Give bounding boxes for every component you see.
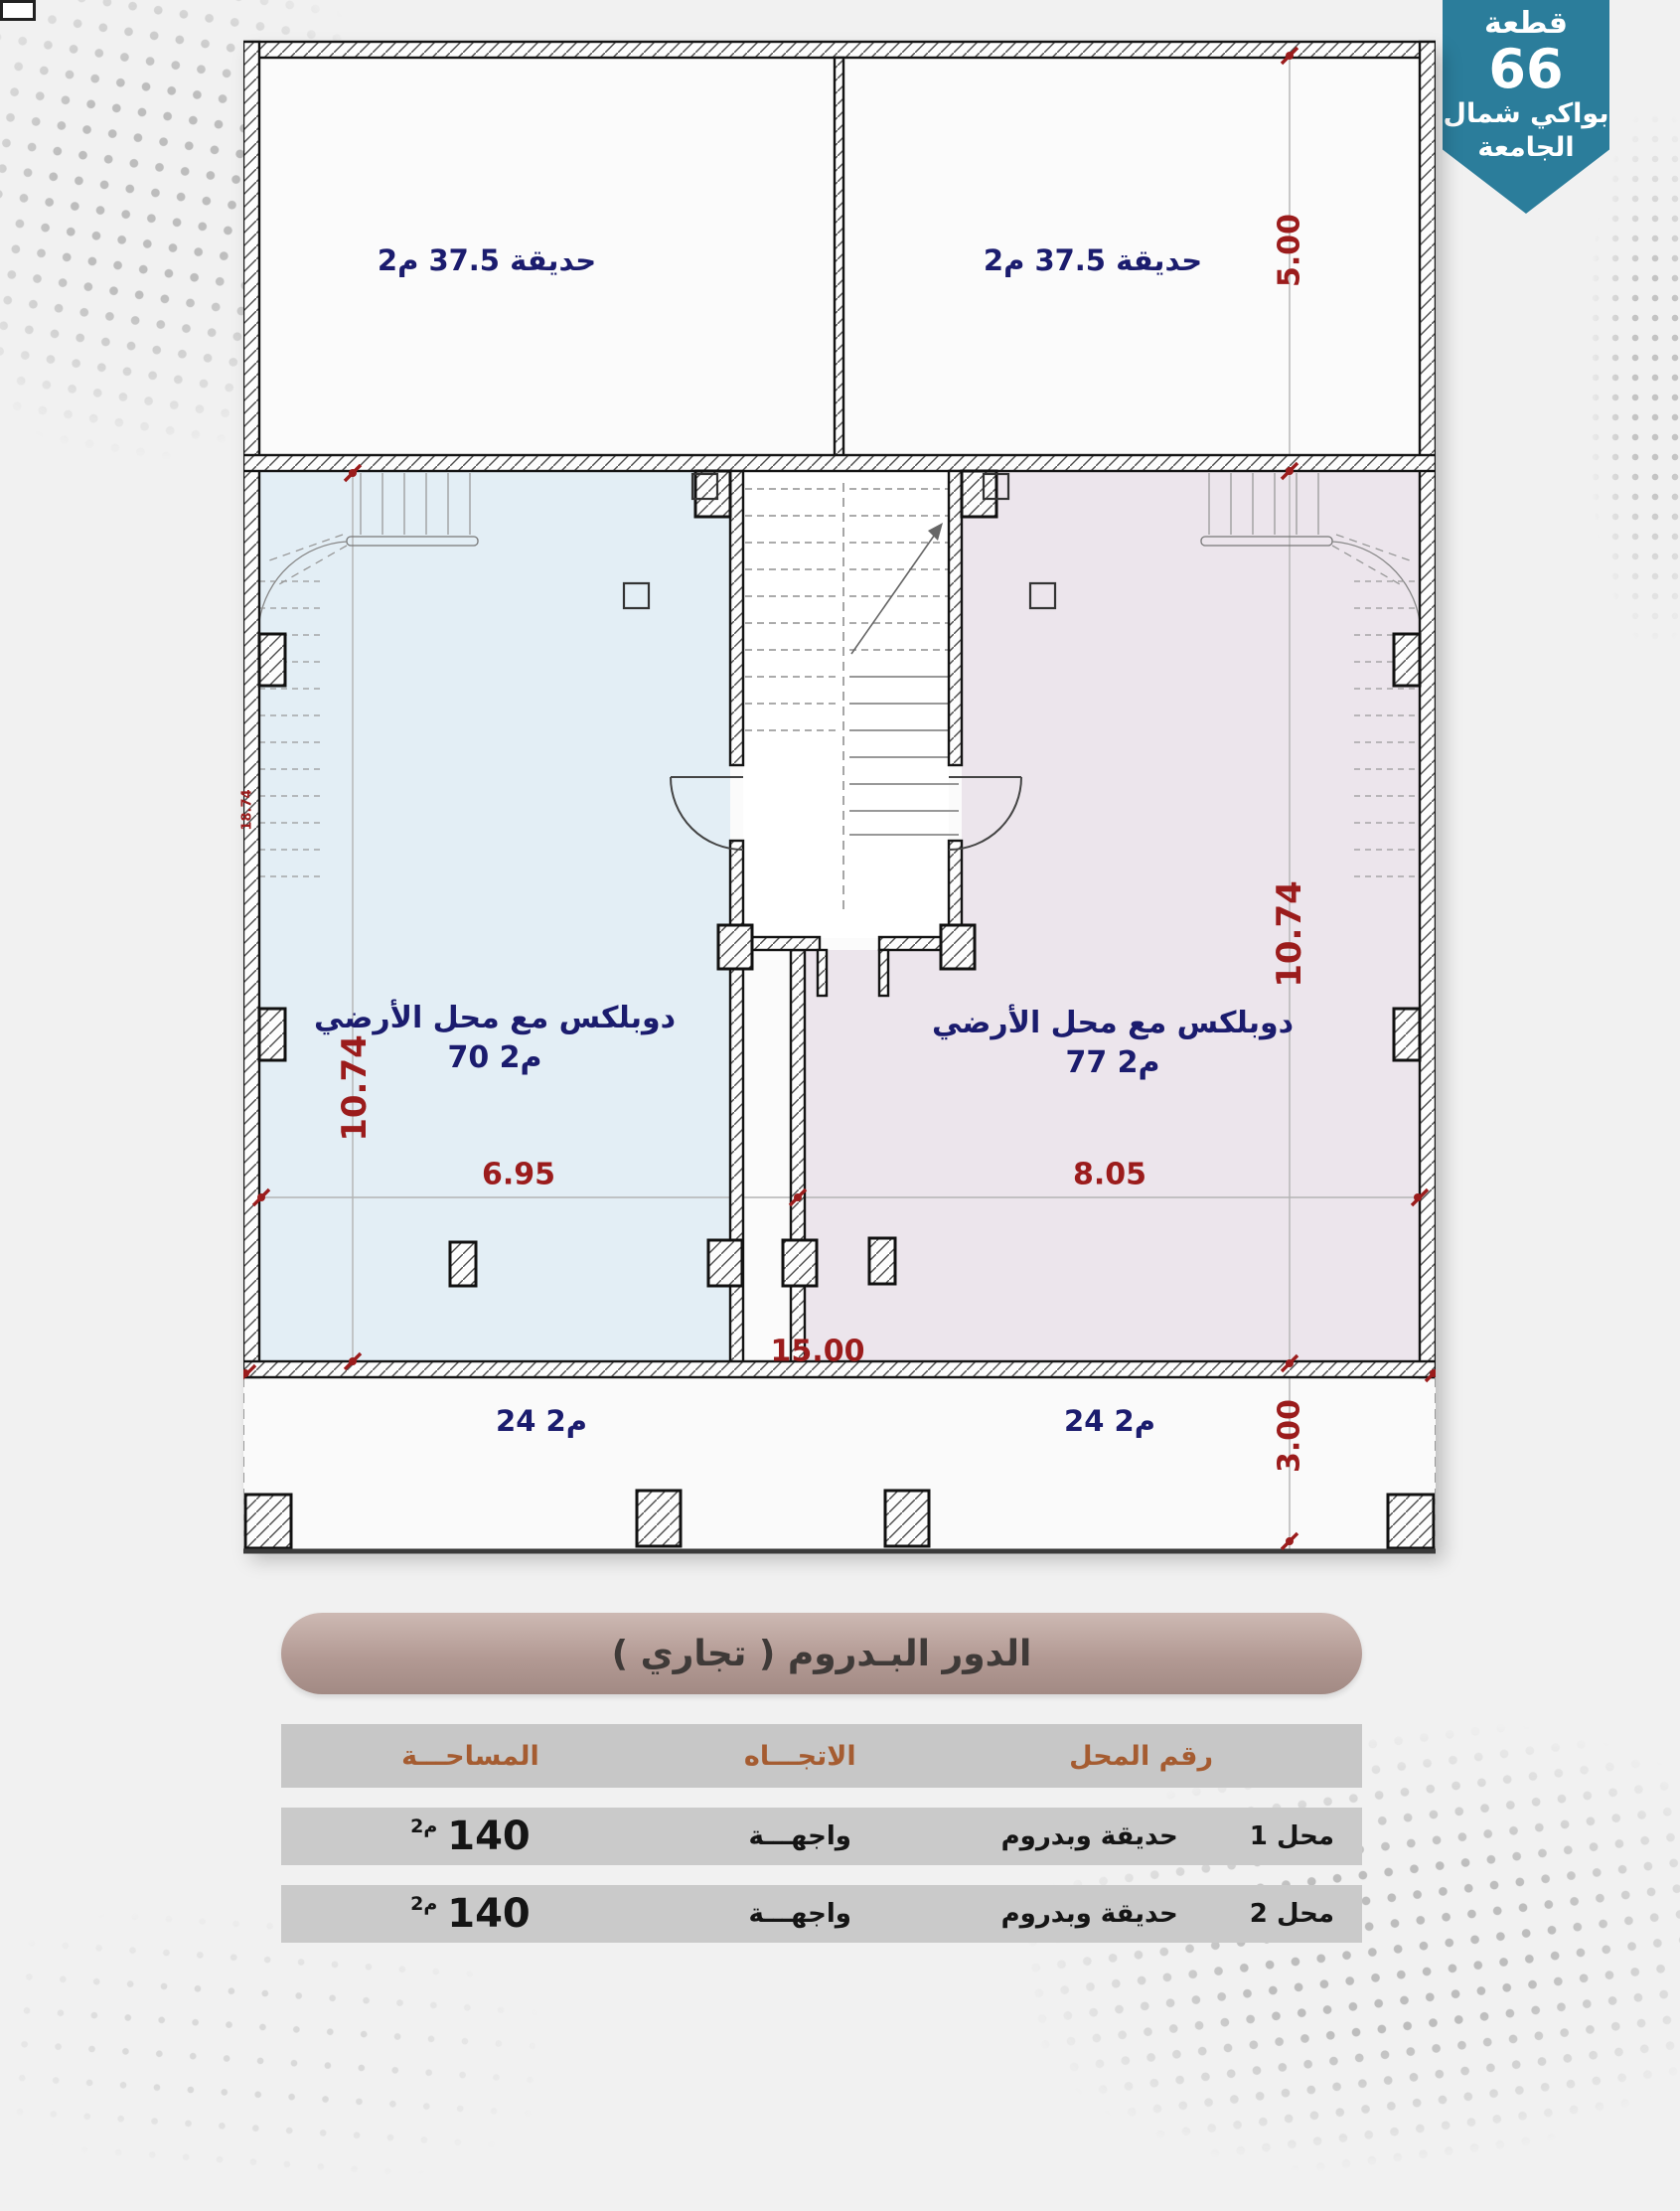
dim-arcade-height: 3.00 — [1273, 1399, 1307, 1473]
unit-right-line1: دوبلكس مع محل الأرضي — [932, 1004, 1294, 1043]
shop-direction: واجهـــة — [660, 1899, 941, 1929]
floor-plan: حديقة 37.5 م2 حديقة 37.5 م2 دوبلكس مع مح… — [243, 40, 1436, 1560]
badge-plot-number: 66 — [1488, 42, 1563, 97]
shop-area-unit: م2 — [410, 1893, 437, 1915]
table-header-row: رقم المحل الاتجـــاه المساحـــة — [281, 1724, 1362, 1788]
unit-right-label: دوبلكس مع محل الأرضي 77 م2 — [932, 1004, 1294, 1083]
table-row: محل 1 حديقة وبدروم واجهـــة 140 م2 — [281, 1808, 1362, 1865]
unit-left-line1: دوبلكس مع محل الأرضي — [314, 999, 676, 1038]
shop-number: محل 2 — [1250, 1899, 1334, 1929]
dim-unit-height-left: 10.74 — [335, 1034, 375, 1142]
floor-title-text: الدور البـدروم ( تجاري ) — [612, 1634, 1032, 1674]
header-shop-number: رقم المحل — [941, 1741, 1362, 1772]
garden-right-label: حديقة 37.5 م2 — [984, 243, 1202, 277]
shop-area-value: 140 — [447, 1814, 531, 1859]
halftone-dots-right — [1586, 109, 1680, 646]
dim-unit-width-left: 6.95 — [482, 1158, 555, 1192]
plot-badge: قطعة 66 بواكي شمال الجامعة — [1443, 0, 1609, 214]
shop-number: محل 1 — [1250, 1821, 1334, 1851]
dim-total-height: 18.74 — [240, 789, 255, 830]
corner-frame-fragment — [0, 0, 36, 21]
arcade-left-label: 24 م2 — [496, 1404, 587, 1438]
arcade-right-label: 24 م2 — [1064, 1404, 1155, 1438]
dim-garden-height: 5.00 — [1273, 214, 1307, 287]
badge-line3: الجامعة — [1477, 131, 1574, 165]
shop-direction: واجهـــة — [660, 1821, 941, 1851]
unit-right-area: 77 م2 — [932, 1043, 1294, 1083]
badge-line2: بواكي شمال — [1444, 97, 1609, 131]
dim-unit-width-right: 8.05 — [1073, 1158, 1146, 1192]
garden-left-label: حديقة 37.5 م2 — [378, 243, 596, 277]
dim-unit-height-right: 10.74 — [1270, 880, 1309, 988]
table-row: محل 2 حديقة وبدروم واجهـــة 140 م2 — [281, 1885, 1362, 1943]
floor-title-bar: الدور البـدروم ( تجاري ) — [281, 1613, 1362, 1694]
dim-total-width: 15.00 — [771, 1335, 865, 1369]
shop-area-value: 140 — [447, 1891, 531, 1937]
badge-line1: قطعة — [1484, 6, 1568, 42]
shops-table: رقم المحل الاتجـــاه المساحـــة محل 1 حد… — [281, 1724, 1362, 1943]
shop-desc: حديقة وبدروم — [1001, 1899, 1178, 1929]
header-direction: الاتجـــاه — [660, 1741, 941, 1772]
shop-area-unit: م2 — [410, 1816, 437, 1837]
header-area: المساحـــة — [281, 1741, 660, 1772]
shop-desc: حديقة وبدروم — [1001, 1821, 1178, 1851]
arcade-strip — [243, 1377, 1436, 1551]
